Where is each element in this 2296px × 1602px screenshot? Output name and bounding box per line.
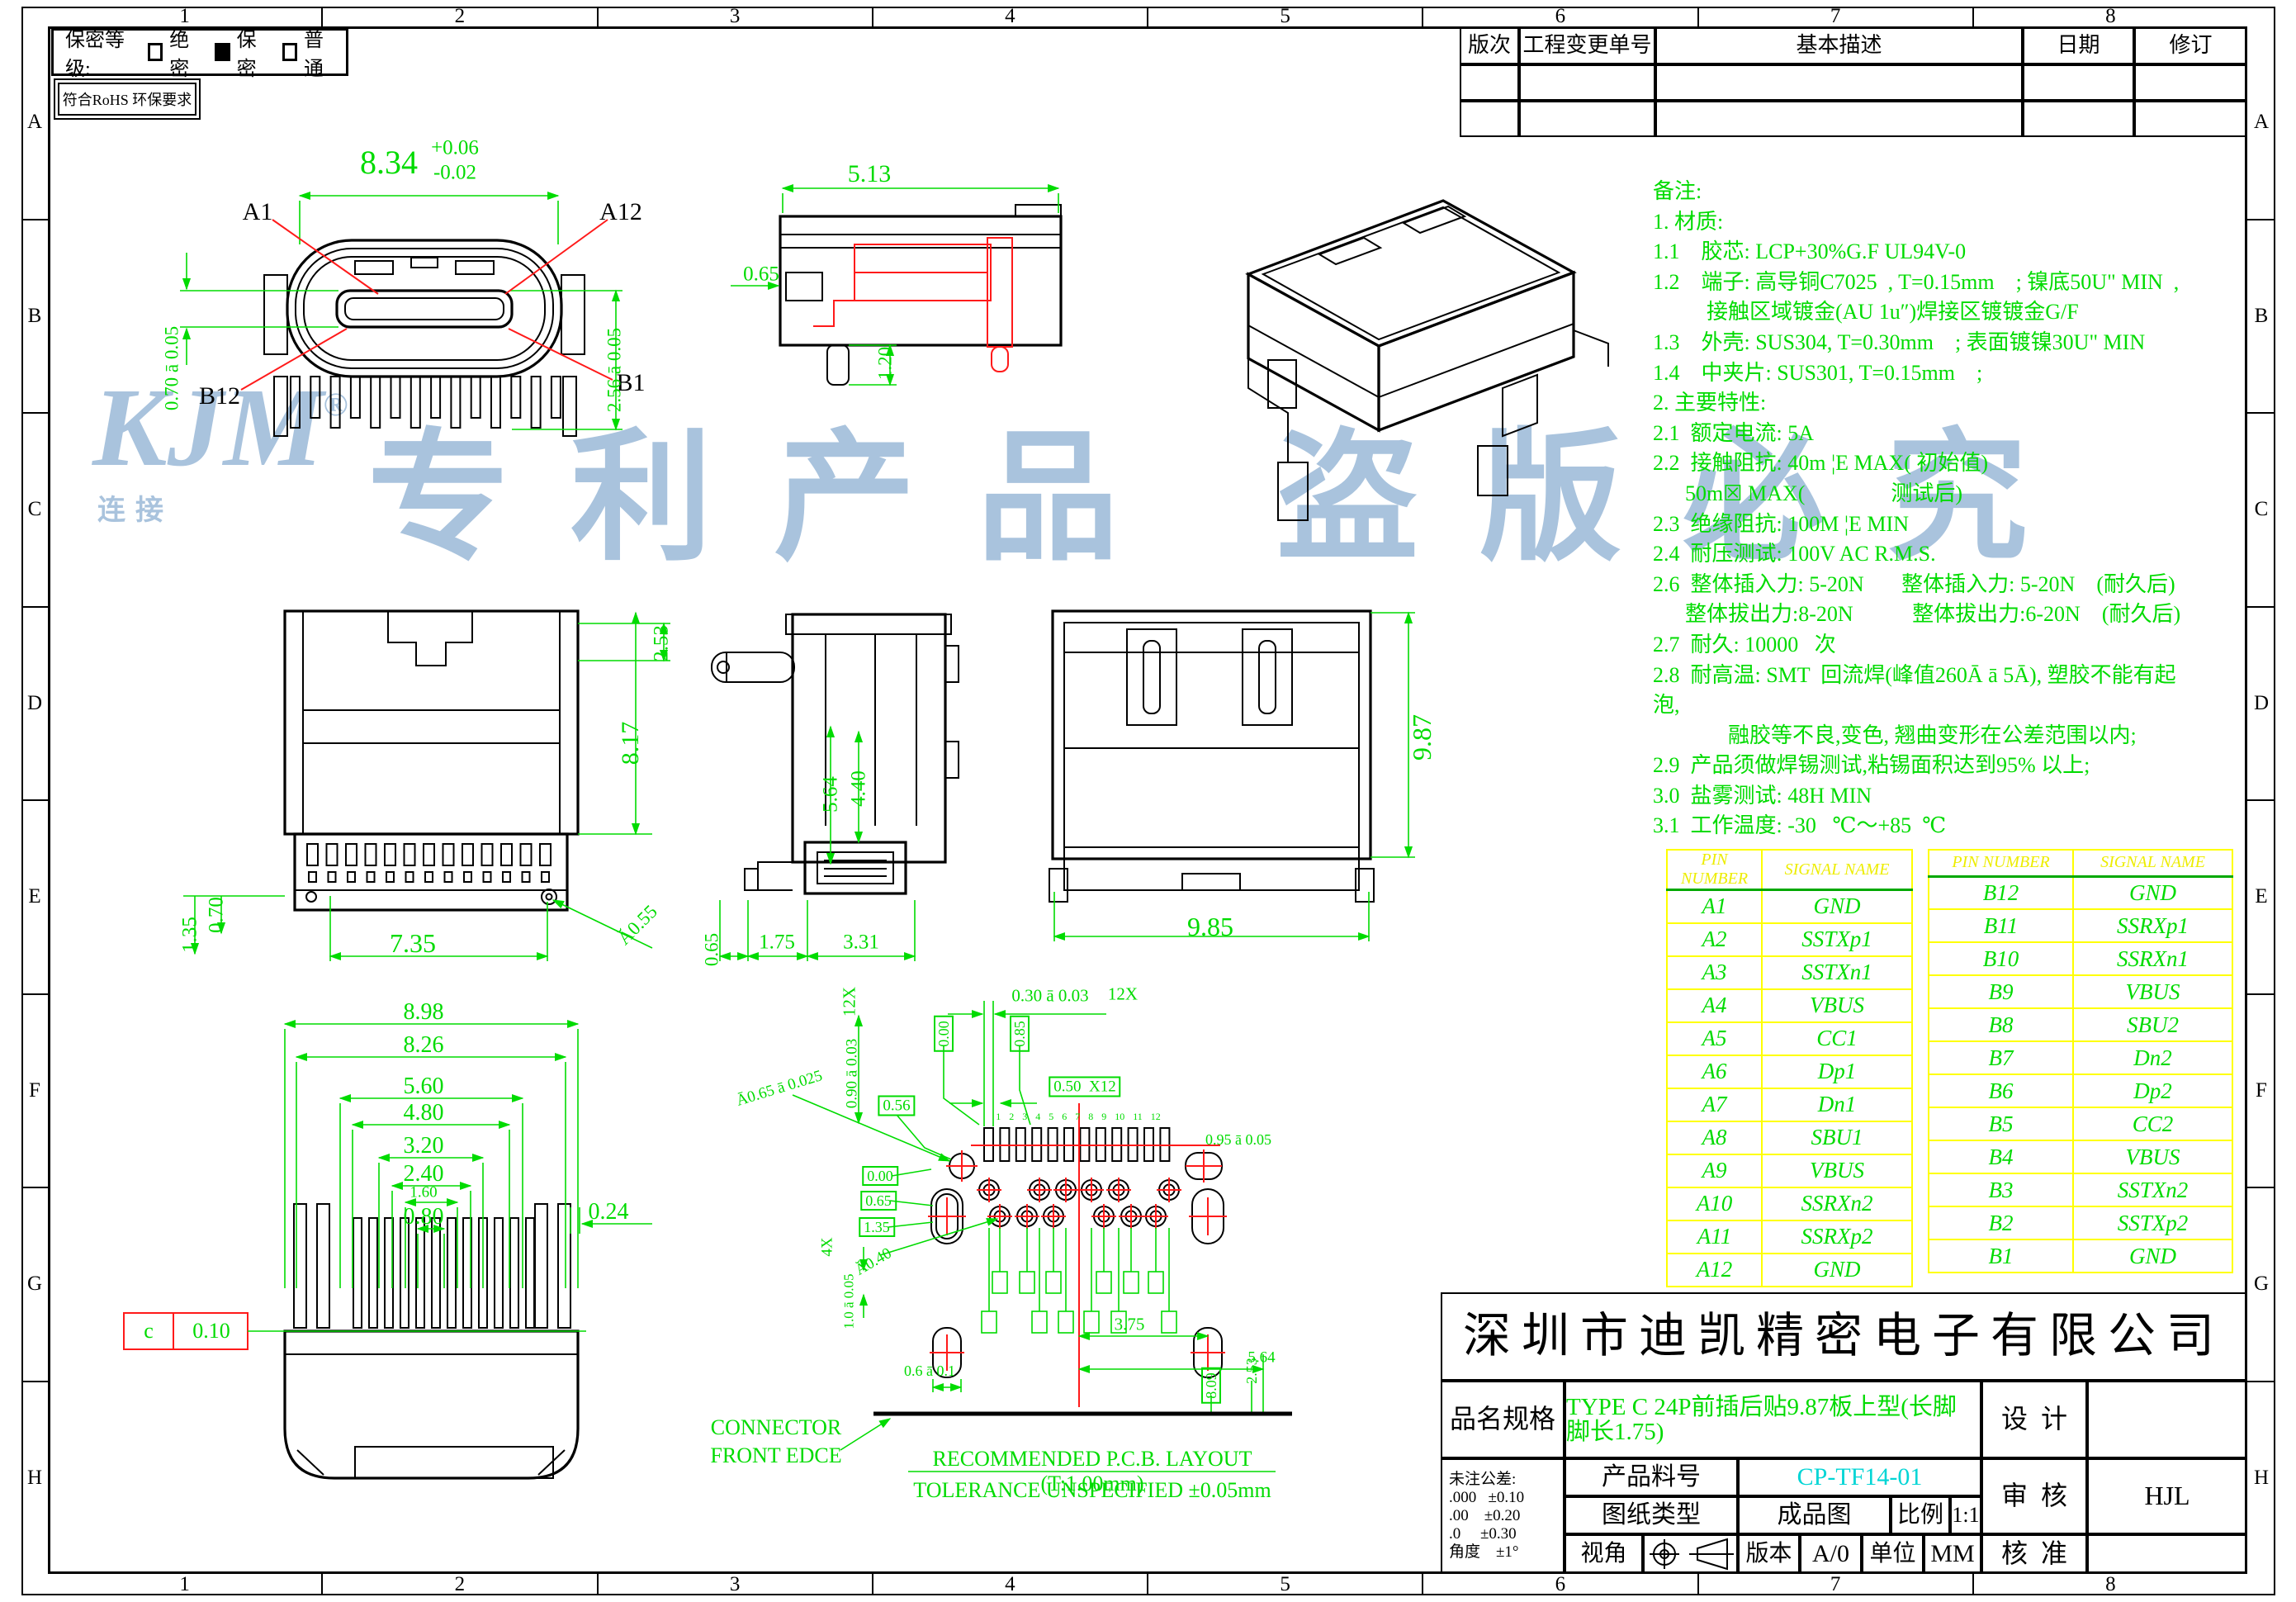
dim-label: 0.90 ā 0.03 bbox=[845, 1039, 860, 1108]
dim-label: 0.24 bbox=[589, 1201, 629, 1224]
revision-cell bbox=[2134, 64, 2247, 101]
grid-row-label: C bbox=[21, 414, 48, 608]
revision-header: 基本描述 bbox=[1655, 26, 2023, 64]
drawing-sheet: KJM® 连接 专利产品 盗版必究 bbox=[0, 0, 2296, 1602]
pin-cell: B10 bbox=[1929, 942, 2073, 975]
pin-cell: SSRXn1 bbox=[2073, 942, 2232, 975]
security-option: 保密 bbox=[215, 23, 267, 81]
dim-label: 0.70 ā 0.05 bbox=[163, 326, 182, 410]
approve-value bbox=[2087, 1534, 2247, 1574]
tolerance-block: 未注公差:.000 ±0.10.00 ±0.20.0 ±0.30角度 ±1° bbox=[1441, 1458, 1565, 1574]
revision-cell bbox=[2023, 101, 2134, 137]
pin-cell: B4 bbox=[1929, 1140, 2073, 1173]
note-line: 2.9 产品须做焊锡测试,粘锡面积达到95% 以上; bbox=[1653, 751, 2251, 781]
security-option-label: 普通 bbox=[304, 23, 334, 81]
dim-label: 0.70 bbox=[206, 897, 227, 933]
dim-label: 5.60 bbox=[404, 1075, 444, 1098]
pin-table-b: PIN NUMBERSIGNAL NAMEB12GNDB11SSRXp1B10S… bbox=[1928, 849, 2233, 1273]
dim-label: 3.75 bbox=[1115, 1316, 1145, 1334]
grid-col-label: 2 bbox=[323, 7, 598, 26]
pin-cell: A11 bbox=[1667, 1220, 1762, 1254]
pcb-tolerance-note: TOLERANCE UNSPECIFIED ±0.05mm bbox=[907, 1478, 1278, 1503]
dim-label: 0.10 bbox=[192, 1320, 230, 1342]
dim-label: 3.31 bbox=[843, 932, 879, 953]
drawing-type-label: 图纸类型 bbox=[1565, 1496, 1738, 1534]
pin-cell: CC2 bbox=[2073, 1107, 2232, 1140]
dim-label: 1 2 3 4 5 6 7 8 9 10 11 12 bbox=[996, 1111, 1161, 1121]
revision-cell bbox=[1460, 101, 1519, 137]
pin-cell: CC1 bbox=[1762, 1022, 1912, 1055]
dim-label: c bbox=[144, 1320, 154, 1342]
note-line: 1.3 外壳: SUS304, T=0.30mm ; 表面镀镍30U" MIN bbox=[1653, 328, 2251, 358]
approve-label: 核 准 bbox=[1981, 1534, 2087, 1574]
pin-table-row: B1GND bbox=[1929, 1239, 2232, 1273]
pin-table-row: A2SSTXp1 bbox=[1667, 923, 1912, 956]
grid-ruler-right: ABCDEFGH bbox=[2247, 26, 2275, 1574]
drawing-type-value: 成品图 bbox=[1738, 1496, 1891, 1534]
grid-row-label: F bbox=[21, 995, 48, 1189]
checkbox-icon bbox=[282, 43, 297, 61]
grid-ruler-bottom: 12345678 bbox=[48, 1574, 2247, 1595]
revision-cell bbox=[1460, 64, 1519, 101]
note-line: 融胶等不良,变色, 翘曲变形在公差范围以内; bbox=[1653, 721, 2251, 751]
checkbox-icon bbox=[148, 43, 163, 61]
dim-label: 4.40 bbox=[849, 770, 869, 807]
dim-label: 2.53 bbox=[651, 625, 672, 661]
dim-label: A1 bbox=[243, 200, 273, 225]
pin-cell: SSTXp2 bbox=[2073, 1206, 2232, 1239]
security-options: 绝密保密普通 bbox=[148, 23, 334, 81]
pin-table-row: B10SSRXn1 bbox=[1929, 942, 2232, 975]
revision-cell bbox=[1519, 101, 1655, 137]
pin-cell: A9 bbox=[1667, 1154, 1762, 1187]
dim-label: 0.65 bbox=[860, 1191, 897, 1211]
pin-cell: B2 bbox=[1929, 1206, 2073, 1239]
dim-label: 2.40 bbox=[404, 1163, 444, 1186]
pin-table-row: A11SSRXp2 bbox=[1667, 1220, 1912, 1254]
grid-row-label: B bbox=[2247, 220, 2275, 415]
pin-cell: SSRXp2 bbox=[1762, 1220, 1912, 1254]
dim-label: 1.35 bbox=[859, 1217, 895, 1237]
pin-table-row: B11SSRXp1 bbox=[1929, 909, 2232, 942]
tolerance-line: .00 ±0.20 bbox=[1449, 1508, 1520, 1524]
third-angle-projection-icon bbox=[1643, 1534, 1738, 1574]
pin-cell: VBUS bbox=[1762, 989, 1912, 1022]
grid-col-label: 2 bbox=[323, 1574, 598, 1595]
pin-table-row: A7Dn1 bbox=[1667, 1088, 1912, 1121]
dim-label: 0.30 ā 0.03 bbox=[1011, 988, 1088, 1005]
dim-label: 0.6 ā 0.1 bbox=[904, 1363, 955, 1378]
note-line: 1.1 胶芯: LCP+30%G.F UL94V-0 bbox=[1653, 237, 2251, 268]
connector-edge-line2: FRONT EDCE bbox=[698, 1442, 854, 1470]
grid-row-label: E bbox=[21, 801, 48, 995]
dim-label: 1.35 bbox=[180, 917, 201, 953]
pin-cell: VBUS bbox=[2073, 975, 2232, 1008]
note-line: 整体拔出力:8-20N 整体拔出力:6-20N (耐久后) bbox=[1653, 600, 2251, 630]
pin-cell: SSTXn1 bbox=[1762, 956, 1912, 989]
grid-col-label: 7 bbox=[1699, 7, 1974, 26]
product-spec-label: 品名规格 bbox=[1441, 1381, 1565, 1458]
note-line: 2.6 整体插入力: 5-20N 整体插入力: 5-20N (耐久后) bbox=[1653, 570, 2251, 600]
grid-row-label: A bbox=[2247, 26, 2275, 220]
dim-label: 8.09 bbox=[1201, 1367, 1221, 1404]
pin-cell: B11 bbox=[1929, 909, 2073, 942]
note-line: 2.2 接触阻抗: 40m ¦E MAX( 初始值) bbox=[1653, 448, 2251, 479]
pin-cell: B3 bbox=[1929, 1173, 2073, 1206]
version-label: 版本 bbox=[1738, 1534, 1800, 1574]
pin-cell: Dp2 bbox=[2073, 1074, 2232, 1107]
grid-col-label: 8 bbox=[1974, 7, 2247, 26]
dim-label: -0.02 bbox=[433, 163, 476, 183]
pin-table-row: A12GND bbox=[1667, 1254, 1912, 1287]
pin-table-a: PIN NUMBERSIGNAL NAMEA1GNDA2SSTXp1A3SSTX… bbox=[1666, 849, 1913, 1287]
pin-table-row: B7Dn2 bbox=[1929, 1041, 2232, 1074]
note-line: 1.4 中夹片: SUS301, T=0.15mm ; bbox=[1653, 358, 2251, 389]
pin-cell: B7 bbox=[1929, 1041, 2073, 1074]
pin-cell: B12 bbox=[1929, 876, 2073, 909]
grid-ruler-left: ABCDEFGH bbox=[21, 26, 48, 1574]
view-angle-label: 视角 bbox=[1565, 1534, 1643, 1574]
pin-table-header: SIGNAL NAME bbox=[1762, 850, 1912, 890]
grid-row-label: H bbox=[2247, 1382, 2275, 1575]
note-line: 泡, bbox=[1653, 690, 2251, 721]
note-line: 2.8 耐高温: SMT 回流焊(峰值260Ā ā 5Ā), 塑胶不能有起 bbox=[1653, 661, 2251, 691]
scale-label: 比例 bbox=[1891, 1496, 1950, 1534]
grid-col-label: 5 bbox=[1148, 7, 1423, 26]
note-line: 3.0 盐雾测试: 48H MIN bbox=[1653, 781, 2251, 812]
dim-label: 0.65 bbox=[703, 933, 722, 966]
pin-cell: A1 bbox=[1667, 890, 1762, 923]
dim-label: 0.95 ā 0.05 bbox=[1205, 1132, 1271, 1147]
revision-header: 修订 bbox=[2134, 26, 2247, 64]
dim-label: 8.17 bbox=[618, 722, 643, 765]
pin-cell: SBU1 bbox=[1762, 1121, 1912, 1154]
revision-cell bbox=[1655, 64, 2023, 101]
revision-cell bbox=[1655, 101, 2023, 137]
notes-block: 备注:1. 材质:1.1 胶芯: LCP+30%G.F UL94V-01.2 端… bbox=[1653, 177, 2251, 841]
grid-row-label: G bbox=[21, 1188, 48, 1382]
pin-cell: VBUS bbox=[1762, 1154, 1912, 1187]
pin-cell: B6 bbox=[1929, 1074, 2073, 1107]
note-line: 50m☒ MAX( 测试后) bbox=[1653, 479, 2251, 510]
pin-cell: SSRXn2 bbox=[1762, 1187, 1912, 1220]
connector-edge-line1: CONNECTOR bbox=[698, 1414, 854, 1442]
security-option-label: 保密 bbox=[237, 23, 267, 81]
grid-ruler-top: 12345678 bbox=[48, 7, 2247, 26]
grid-row-label: B bbox=[21, 220, 48, 415]
dim-label: 12X bbox=[841, 987, 859, 1017]
pin-cell: GND bbox=[2073, 1239, 2232, 1273]
pin-table-row: A8SBU1 bbox=[1667, 1121, 1912, 1154]
tolerance-line: 角度 ±1° bbox=[1449, 1544, 1519, 1561]
pin-table-row: B4VBUS bbox=[1929, 1140, 2232, 1173]
pin-cell: B8 bbox=[1929, 1008, 2073, 1041]
pin-table-row: B5CC2 bbox=[1929, 1107, 2232, 1140]
dim-label: 8.26 bbox=[404, 1034, 444, 1057]
pin-cell: B5 bbox=[1929, 1107, 2073, 1140]
pin-table-row: A1GND bbox=[1667, 890, 1912, 923]
revision-header: 日期 bbox=[2023, 26, 2134, 64]
pin-table-row: A9VBUS bbox=[1667, 1154, 1912, 1187]
grid-col-label: 4 bbox=[873, 7, 1148, 26]
grid-col-label: 3 bbox=[599, 1574, 873, 1595]
tolerance-line: 未注公差: bbox=[1449, 1472, 1516, 1488]
grid-col-label: 5 bbox=[1148, 1574, 1423, 1595]
pin-cell: A7 bbox=[1667, 1088, 1762, 1121]
unit-label: 单位 bbox=[1862, 1534, 1924, 1574]
dim-label: 5.64 bbox=[821, 776, 841, 813]
pin-table-row: B12GND bbox=[1929, 876, 2232, 909]
dim-label: 2.56 ā 0.05 bbox=[605, 328, 624, 412]
pin-cell: Dn2 bbox=[2073, 1041, 2232, 1074]
pin-table-row: A5CC1 bbox=[1667, 1022, 1912, 1055]
company-name: 深圳市迪凯精密电子有限公司 bbox=[1441, 1292, 2247, 1381]
security-option: 绝密 bbox=[148, 23, 200, 81]
dim-label: B12 bbox=[199, 384, 240, 409]
pin-cell: SSTXp1 bbox=[1762, 923, 1912, 956]
note-line: 备注: bbox=[1653, 177, 2251, 207]
pin-table-row: B9VBUS bbox=[1929, 975, 2232, 1008]
grid-row-label: C bbox=[2247, 414, 2275, 608]
pin-cell: A10 bbox=[1667, 1187, 1762, 1220]
grid-row-label: F bbox=[2247, 995, 2275, 1189]
security-option: 普通 bbox=[282, 23, 334, 81]
revision-cell bbox=[2134, 101, 2247, 137]
pin-cell: B9 bbox=[1929, 975, 2073, 1008]
pin-cell: VBUS bbox=[2073, 1140, 2232, 1173]
dim-label: 0.85 bbox=[1010, 1016, 1030, 1052]
dim-label: 12X bbox=[1108, 986, 1138, 1003]
note-line: 2. 主要特性: bbox=[1653, 388, 2251, 419]
grid-row-label: H bbox=[21, 1382, 48, 1575]
note-line: 2.3 绝缘阻抗: 100M ¦E MIN bbox=[1653, 510, 2251, 540]
pin-table-row: B3SSTXn2 bbox=[1929, 1173, 2232, 1206]
pin-table-row: A6Dp1 bbox=[1667, 1055, 1912, 1088]
note-line: 1.2 端子: 高导铜C7025 , T=0.15mm ; 镍底50U" MIN… bbox=[1653, 268, 2251, 298]
version-value: A/0 bbox=[1800, 1534, 1862, 1574]
review-value: HJL bbox=[2087, 1458, 2247, 1534]
pin-cell: GND bbox=[1762, 890, 1912, 923]
pin-cell: A6 bbox=[1667, 1055, 1762, 1088]
dim-label: 9.85 bbox=[1187, 913, 1233, 940]
dim-label: 0.00 bbox=[862, 1166, 898, 1186]
dim-label: 0.65 bbox=[743, 264, 779, 285]
pin-table-row: A4VBUS bbox=[1667, 989, 1912, 1022]
grid-col-label: 6 bbox=[1423, 7, 1698, 26]
dim-label: 1.75 bbox=[759, 932, 795, 953]
pin-cell: A5 bbox=[1667, 1022, 1762, 1055]
dim-label: 0.50 X12 bbox=[1049, 1077, 1120, 1097]
pin-table-row: A10SSRXn2 bbox=[1667, 1187, 1912, 1220]
dim-label: 4.80 bbox=[404, 1102, 444, 1125]
pin-table-row: B2SSTXp2 bbox=[1929, 1206, 2232, 1239]
product-name: TYPE C 24P前插后贴9.87板上型(长脚脚长1.75) bbox=[1565, 1381, 1981, 1458]
pin-cell: GND bbox=[1762, 1254, 1912, 1287]
revision-header: 工程变更单号 bbox=[1519, 26, 1655, 64]
note-line: 3.1 工作温度: -30 ℃～+85 ℃ bbox=[1653, 811, 2251, 841]
dim-label: 7.35 bbox=[390, 930, 436, 956]
dim-label: A12 bbox=[599, 200, 642, 225]
security-option-label: 绝密 bbox=[169, 23, 200, 81]
pin-cell: A12 bbox=[1667, 1254, 1762, 1287]
pin-cell: Dn1 bbox=[1762, 1088, 1912, 1121]
tolerance-line: .000 ±0.10 bbox=[1449, 1490, 1524, 1506]
dim-label: 0.00 bbox=[934, 1016, 954, 1052]
grid-col-label: 6 bbox=[1423, 1574, 1698, 1595]
revision-cell bbox=[2023, 64, 2134, 101]
dim-label: 1.20 bbox=[876, 347, 895, 380]
dim-label: 8.34 bbox=[360, 146, 418, 179]
grid-col-label: 7 bbox=[1699, 1574, 1974, 1595]
pin-cell: SBU2 bbox=[2073, 1008, 2232, 1041]
note-line: 1. 材质: bbox=[1653, 207, 2251, 238]
pin-cell: B1 bbox=[1929, 1239, 2073, 1273]
rohs-label: 符合RoHS 环保要求 bbox=[63, 88, 192, 110]
dim-label: +0.06 bbox=[431, 138, 479, 159]
pin-cell: GND bbox=[2073, 876, 2232, 909]
dim-label: 3.20 bbox=[404, 1135, 444, 1158]
grid-col-label: 8 bbox=[1974, 1574, 2247, 1595]
tolerance-line: .0 ±0.30 bbox=[1449, 1526, 1517, 1543]
pin-cell: Dp1 bbox=[1762, 1055, 1912, 1088]
grid-row-label: D bbox=[2247, 608, 2275, 802]
unit-value: MM bbox=[1924, 1534, 1981, 1574]
pin-table-row: B8SBU2 bbox=[1929, 1008, 2232, 1041]
pin-cell: A3 bbox=[1667, 956, 1762, 989]
part-number-label: 产品料号 bbox=[1565, 1458, 1738, 1496]
pin-table-row: A3SSTXn1 bbox=[1667, 956, 1912, 989]
design-label: 设 计 bbox=[1981, 1381, 2087, 1458]
dim-label: 1.60 bbox=[409, 1185, 437, 1201]
grid-row-label: D bbox=[21, 608, 48, 802]
dim-label: 1.0 ā 0.05 bbox=[842, 1273, 856, 1329]
security-label: 保密等级: bbox=[65, 23, 136, 81]
design-value bbox=[2087, 1381, 2247, 1458]
grid-col-label: 1 bbox=[48, 1574, 323, 1595]
grid-row-label: E bbox=[2247, 801, 2275, 995]
pin-cell: SSTXn2 bbox=[2073, 1173, 2232, 1206]
note-line: 接触区域镀金(AU 1u″)焊接区镀镀金G/F bbox=[1653, 297, 2251, 328]
revision-header: 版次 bbox=[1460, 26, 1519, 64]
pin-cell: SSRXp1 bbox=[2073, 909, 2232, 942]
pin-cell: A2 bbox=[1667, 923, 1762, 956]
dim-label: 0.56 bbox=[878, 1096, 915, 1116]
dim-label: 5.13 bbox=[848, 162, 892, 187]
dim-label: 9.87 bbox=[1408, 714, 1435, 761]
grid-col-label: 3 bbox=[599, 7, 873, 26]
pin-table-header: PIN NUMBER bbox=[1929, 850, 2073, 876]
grid-col-label: 4 bbox=[873, 1574, 1148, 1595]
pin-cell: A4 bbox=[1667, 989, 1762, 1022]
rohs-badge: 符合RoHS 环保要求 bbox=[58, 83, 196, 116]
pin-cell: A8 bbox=[1667, 1121, 1762, 1154]
connector-front-edge-label: CONNECTOR FRONT EDCE bbox=[698, 1414, 854, 1470]
part-number-value: CP-TF14-01 bbox=[1738, 1458, 1981, 1496]
revision-cell bbox=[1519, 64, 1655, 101]
review-label: 审 核 bbox=[1981, 1458, 2087, 1534]
checkbox-icon bbox=[215, 43, 230, 61]
grid-row-label: A bbox=[21, 26, 48, 220]
note-line: 2.1 额定电流: 5A bbox=[1653, 419, 2251, 449]
scale-value: 1:1 bbox=[1950, 1496, 1981, 1534]
note-line: 2.7 耐久: 10000 次 bbox=[1653, 630, 2251, 661]
pin-table-row: B6Dp2 bbox=[1929, 1074, 2232, 1107]
pin-table-header: PIN NUMBER bbox=[1667, 850, 1762, 890]
dim-label: 8.98 bbox=[404, 1001, 444, 1024]
security-level-box: 保密等级: 绝密保密普通 bbox=[51, 28, 348, 76]
note-line: 2.4 耐压测试: 100V AC R.M.S. bbox=[1653, 539, 2251, 570]
pin-table-header: SIGNAL NAME bbox=[2073, 850, 2232, 876]
dim-label: 0.80 bbox=[404, 1206, 444, 1229]
grid-row-label: G bbox=[2247, 1188, 2275, 1382]
dim-label: 2.53 bbox=[1244, 1358, 1259, 1384]
dim-label: 4X bbox=[820, 1237, 836, 1256]
